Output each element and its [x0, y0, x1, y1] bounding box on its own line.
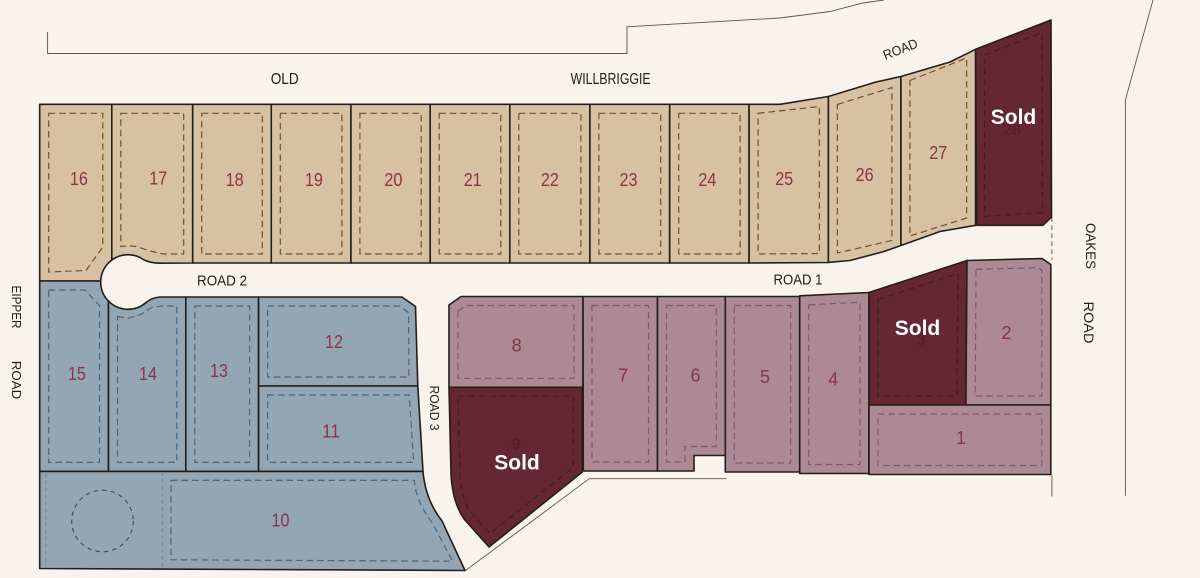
- svg-text:6: 6: [690, 366, 700, 386]
- svg-text:1: 1: [956, 428, 966, 448]
- svg-text:Sold: Sold: [494, 452, 540, 475]
- svg-text:Sold: Sold: [991, 106, 1037, 129]
- svg-text:19: 19: [305, 170, 323, 190]
- svg-text:21: 21: [464, 170, 482, 190]
- svg-text:20: 20: [384, 170, 402, 190]
- svg-text:24: 24: [698, 170, 716, 190]
- svg-text:OLD: OLD: [271, 71, 299, 88]
- svg-text:16: 16: [70, 169, 88, 189]
- svg-text:7: 7: [618, 366, 628, 386]
- svg-text:12: 12: [325, 332, 343, 352]
- svg-text:EIPPER: EIPPER: [9, 286, 23, 329]
- svg-text:WILLBRIGGIE: WILLBRIGGIE: [571, 71, 651, 88]
- svg-text:27: 27: [929, 143, 947, 163]
- svg-text:2: 2: [1001, 323, 1011, 343]
- svg-text:26: 26: [856, 165, 874, 185]
- svg-text:ROAD: ROAD: [9, 361, 23, 400]
- svg-text:18: 18: [226, 170, 244, 190]
- svg-text:8: 8: [512, 336, 522, 356]
- svg-text:13: 13: [210, 361, 228, 381]
- svg-text:25: 25: [775, 169, 793, 189]
- svg-text:11: 11: [322, 422, 340, 442]
- svg-text:14: 14: [139, 364, 157, 384]
- svg-text:5: 5: [760, 367, 770, 387]
- svg-text:ROAD 2: ROAD 2: [197, 274, 247, 290]
- svg-text:ROAD 1: ROAD 1: [774, 273, 823, 289]
- svg-text:23: 23: [620, 170, 638, 190]
- svg-text:ROAD: ROAD: [1081, 302, 1096, 344]
- svg-text:OAKES: OAKES: [1083, 223, 1098, 269]
- svg-text:15: 15: [68, 364, 86, 384]
- svg-text:17: 17: [149, 169, 167, 189]
- svg-text:4: 4: [828, 369, 838, 389]
- svg-text:10: 10: [272, 511, 290, 531]
- svg-text:ROAD 3: ROAD 3: [427, 386, 442, 431]
- svg-text:Sold: Sold: [895, 317, 941, 340]
- svg-text:22: 22: [541, 170, 559, 190]
